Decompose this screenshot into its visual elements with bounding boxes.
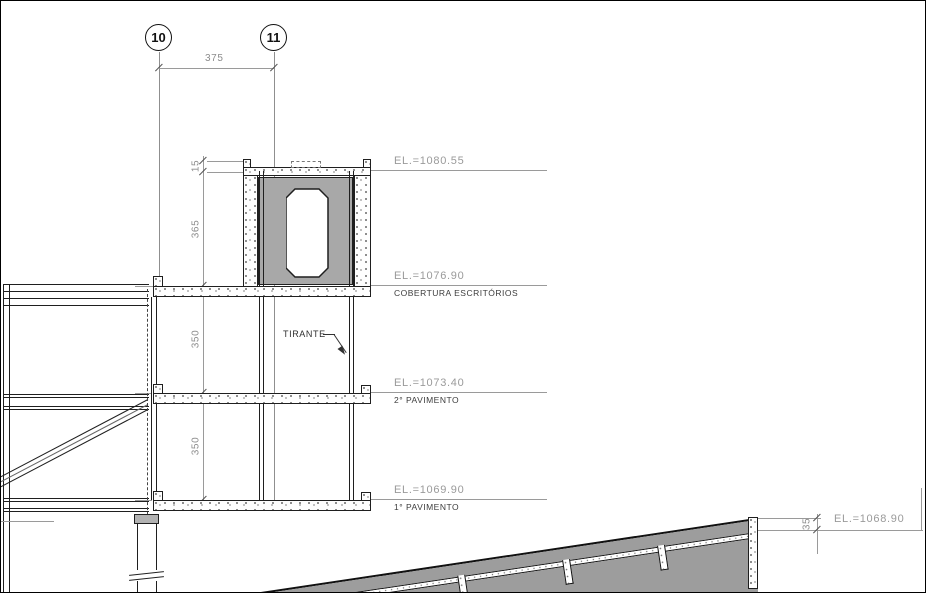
dim-15-text: 15 xyxy=(191,160,202,172)
drawing-sheet: 10 11 375 15 365 350 350 xyxy=(0,0,926,593)
steel-beam-1-pav xyxy=(3,498,149,499)
elevation-1073-line xyxy=(371,392,547,393)
dim-350-lower-text: 350 xyxy=(191,437,202,456)
box-wall-right xyxy=(354,175,371,287)
dim-350-upper-text: 350 xyxy=(191,330,202,349)
elevation-1068-label: EL.=1068.90 xyxy=(834,513,904,525)
diagonal-brace xyxy=(0,399,148,478)
dim-375-line xyxy=(159,68,274,69)
steel-beam-cobertura xyxy=(3,284,149,285)
grid-bubble-11: 11 xyxy=(260,24,287,51)
dim-375-text: 375 xyxy=(205,53,224,64)
column-break-line xyxy=(129,576,164,581)
right-extension-line xyxy=(921,488,922,530)
tie-rod-right xyxy=(353,171,354,509)
steel-beam-cobertura xyxy=(3,291,149,292)
steel-column-left-flange xyxy=(3,284,4,592)
steel-beam-seat-line xyxy=(1,521,54,522)
roof-slab-section xyxy=(231,505,758,593)
tie-rod-left xyxy=(259,171,260,509)
elevation-1069-line xyxy=(371,499,547,500)
roof-slab-rotated xyxy=(231,518,758,593)
steel-beam-1-pav xyxy=(3,511,149,512)
tie-rod-left xyxy=(263,171,264,509)
tirante-arrow xyxy=(337,346,347,357)
steel-beam-1-pav xyxy=(3,501,149,502)
steel-column-left-flange xyxy=(9,284,10,592)
level-name-2-pavimento: 2° PAVIMENTO xyxy=(394,395,459,405)
steel-beam-2-pav xyxy=(3,397,149,398)
elevation-1076-label: EL.=1076.90 xyxy=(394,270,464,282)
column-break-line xyxy=(129,571,164,576)
column-center-dashed-line xyxy=(147,289,148,520)
dim-365-text: 365 xyxy=(191,220,202,239)
steel-beam-2-pav xyxy=(3,406,149,407)
dim-chain-line xyxy=(203,156,204,500)
level-name-cobertura: COBERTURA ESCRITÓRIOS xyxy=(394,288,518,298)
elevation-1080-line xyxy=(371,170,547,171)
elevation-1080-label: EL.=1080.55 xyxy=(394,155,464,167)
column-below-side xyxy=(137,581,138,592)
column-below-side xyxy=(137,524,138,570)
grid-bubble-10-label: 10 xyxy=(151,30,165,45)
steel-beam-1-pav xyxy=(3,508,149,509)
grid-bubble-11-label: 11 xyxy=(267,30,281,45)
elevation-1069-label: EL.=1069.90 xyxy=(394,484,464,496)
tie-rod-right xyxy=(349,171,350,509)
dim-35-text: 35 xyxy=(802,518,813,530)
grid-bubble-10: 10 xyxy=(145,24,172,51)
slab-2-pavimento xyxy=(153,393,371,404)
diagonal-brace xyxy=(0,409,148,488)
column-below-side xyxy=(156,524,157,570)
column-bearing-pad xyxy=(134,514,159,524)
beam-hollow-core-void xyxy=(286,187,330,279)
dim-ext-line xyxy=(207,172,243,173)
tirante-label: TIRANTE xyxy=(283,329,326,339)
column-grid10-face xyxy=(151,297,152,500)
elevation-1073-label: EL.=1073.40 xyxy=(394,377,464,389)
steel-beam-2-pav xyxy=(3,394,149,395)
steel-beam-cobertura xyxy=(3,298,149,299)
dim-ext-line xyxy=(207,161,246,162)
box-wall-left xyxy=(243,175,258,287)
dim-35-line xyxy=(817,514,818,554)
slab-cobertura xyxy=(153,286,371,297)
diagonal-brace xyxy=(0,404,148,483)
future-element-dashed-outline xyxy=(291,161,321,168)
grid-line-10 xyxy=(159,52,160,281)
column-below-side xyxy=(156,581,157,592)
steel-beam-cobertura xyxy=(3,305,149,306)
elevation-1068-line xyxy=(758,530,923,531)
roof-edge-beam xyxy=(748,517,758,589)
elevation-1076-line xyxy=(371,285,547,286)
